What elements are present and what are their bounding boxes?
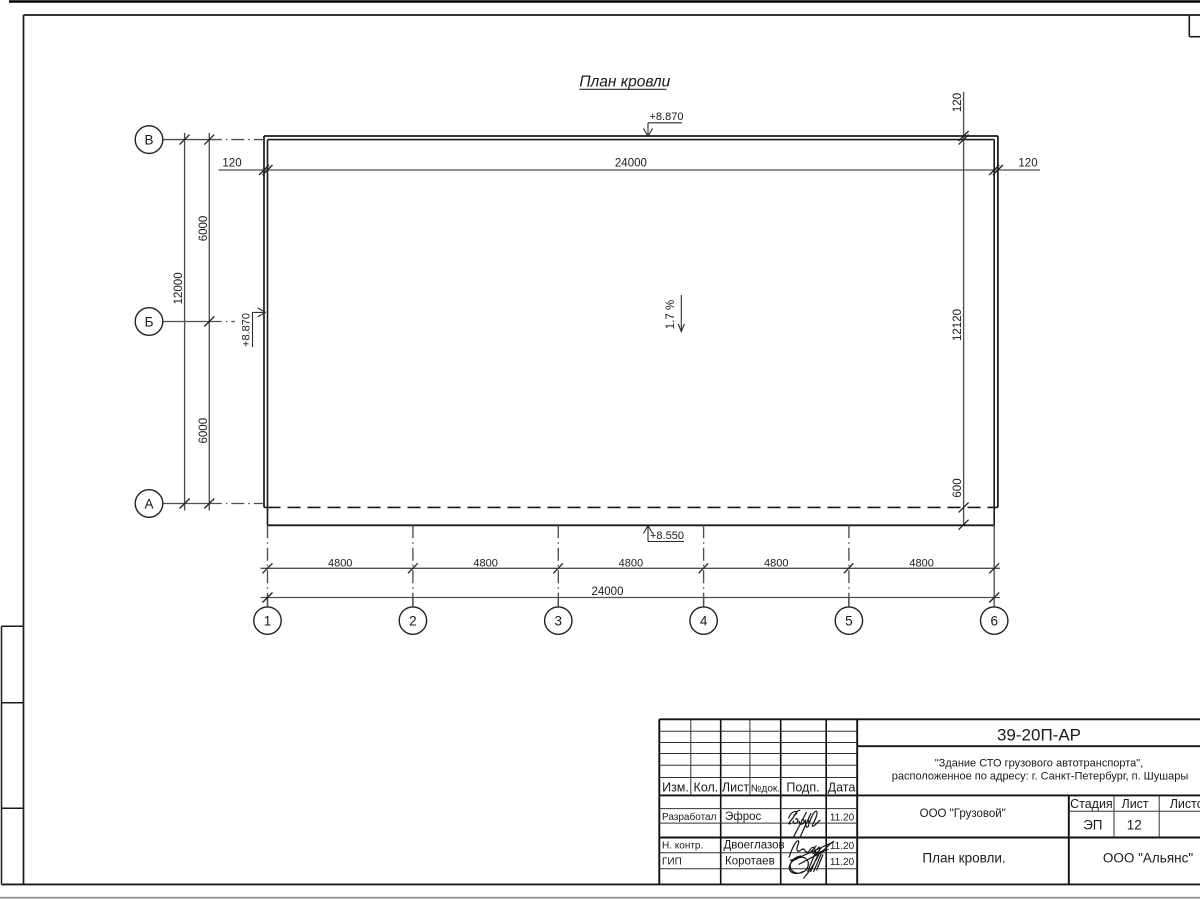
svg-text:А: А: [144, 496, 153, 511]
svg-text:4800: 4800: [328, 557, 352, 569]
svg-text:4800: 4800: [764, 557, 788, 569]
svg-text:120: 120: [1018, 157, 1037, 169]
svg-text:12: 12: [1127, 818, 1142, 833]
svg-text:№док.: №док.: [751, 783, 780, 794]
svg-text:"Здание СТО грузового автотран: "Здание СТО грузового автотранспорта",: [935, 758, 1144, 770]
svg-text:11.20: 11.20: [830, 813, 855, 824]
svg-text:Эфрос: Эфрос: [725, 811, 762, 823]
svg-text:План кровли: План кровли: [579, 73, 670, 90]
svg-text:Дата: Дата: [828, 780, 856, 794]
svg-text:ООО "Грузовой": ООО "Грузовой": [920, 808, 1006, 820]
svg-text:2: 2: [409, 613, 417, 628]
svg-text:120: 120: [222, 157, 241, 169]
svg-text:Двоеглазов: Двоеглазов: [724, 840, 785, 852]
svg-text:24000: 24000: [592, 586, 624, 598]
svg-text:Листов: Листов: [1170, 797, 1200, 811]
svg-text:12000: 12000: [173, 272, 185, 304]
svg-text:Лист: Лист: [722, 780, 749, 794]
svg-text:ГИП: ГИП: [662, 857, 682, 868]
svg-text:6: 6: [990, 613, 998, 628]
svg-text:+8.870: +8.870: [650, 111, 684, 123]
svg-text:Разработал: Разработал: [662, 811, 717, 823]
svg-text:ООО "Альянс": ООО "Альянс": [1103, 851, 1193, 866]
svg-text:11.20: 11.20: [830, 857, 855, 868]
svg-text:Изм.: Изм.: [662, 780, 689, 794]
svg-text:Лист: Лист: [1122, 797, 1149, 811]
svg-text:В: В: [144, 132, 153, 147]
svg-text:120: 120: [952, 93, 964, 112]
svg-text:+8.870: +8.870: [241, 313, 253, 347]
svg-text:+8.550: +8.550: [650, 530, 684, 542]
svg-text:План кровли.: План кровли.: [922, 851, 1005, 866]
svg-text:4: 4: [700, 613, 708, 628]
svg-text:24000: 24000: [615, 157, 647, 169]
svg-text:1.7 %: 1.7 %: [665, 300, 677, 329]
svg-text:Коротаев: Коротаев: [725, 856, 775, 868]
svg-text:Кол.: Кол.: [694, 780, 719, 794]
svg-text:600: 600: [952, 478, 964, 497]
svg-text:4800: 4800: [909, 557, 933, 569]
svg-text:3: 3: [555, 613, 563, 628]
svg-text:расположенное по адресу: г. Са: расположенное по адресу: г. Санкт-Петерб…: [892, 771, 1189, 783]
svg-text:6000: 6000: [198, 216, 210, 242]
svg-text:Подп.: Подп.: [786, 780, 819, 794]
svg-text:4800: 4800: [473, 557, 497, 569]
svg-text:6000: 6000: [198, 418, 210, 444]
svg-text:5: 5: [845, 613, 853, 628]
svg-text:Б: Б: [145, 314, 154, 329]
svg-text:12120: 12120: [952, 309, 964, 341]
svg-text:ЭП: ЭП: [1083, 818, 1102, 833]
svg-text:11.20: 11.20: [830, 841, 855, 852]
svg-text:39-20П-АР: 39-20П-АР: [997, 725, 1081, 744]
svg-text:Стадия: Стадия: [1070, 797, 1113, 811]
svg-text:1: 1: [264, 613, 272, 628]
svg-text:Н. контр.: Н. контр.: [662, 841, 703, 852]
svg-text:4800: 4800: [619, 557, 643, 569]
